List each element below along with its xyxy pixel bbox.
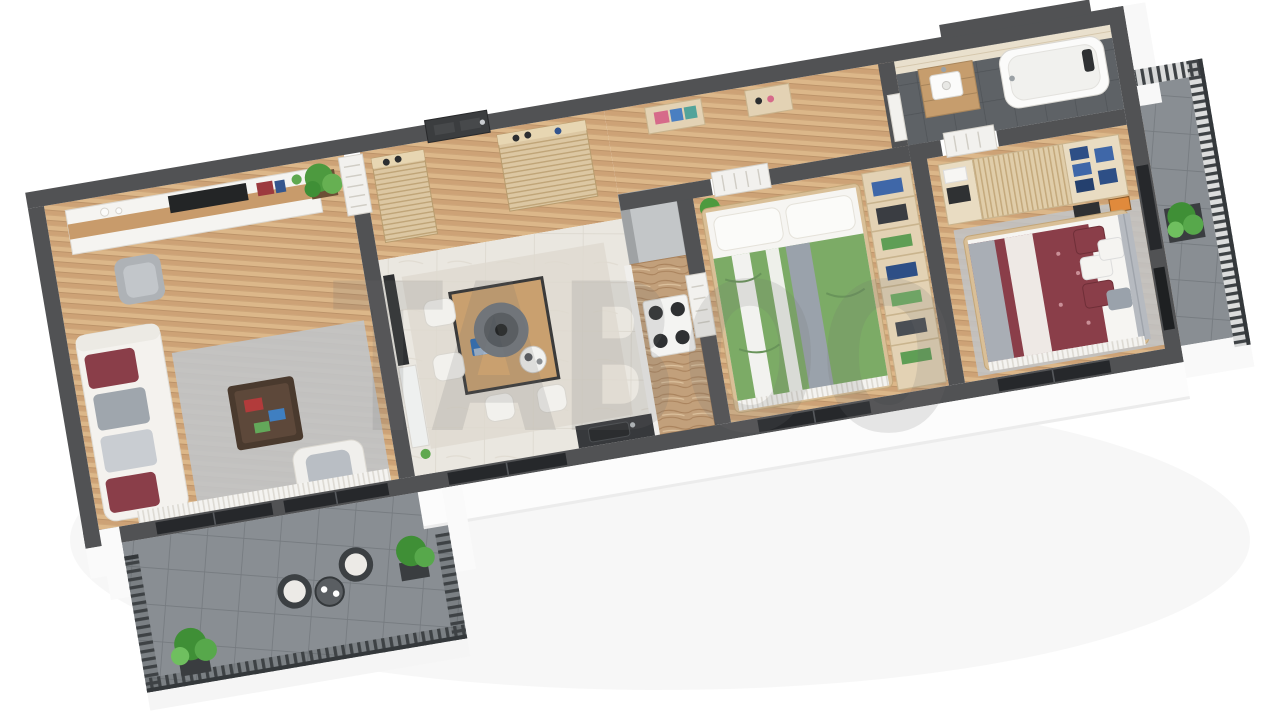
watermark: TABOO: [333, 241, 958, 479]
hall-wardrobe: [497, 120, 598, 211]
bed-maroon: [963, 209, 1152, 372]
armchair: [113, 252, 167, 306]
floor-plan-render: TABOO: [0, 0, 1270, 714]
apartment-3d-render: TABOO: [0, 0, 1270, 714]
coffee-table: [227, 376, 304, 451]
vanity-washbasin: [918, 61, 980, 118]
